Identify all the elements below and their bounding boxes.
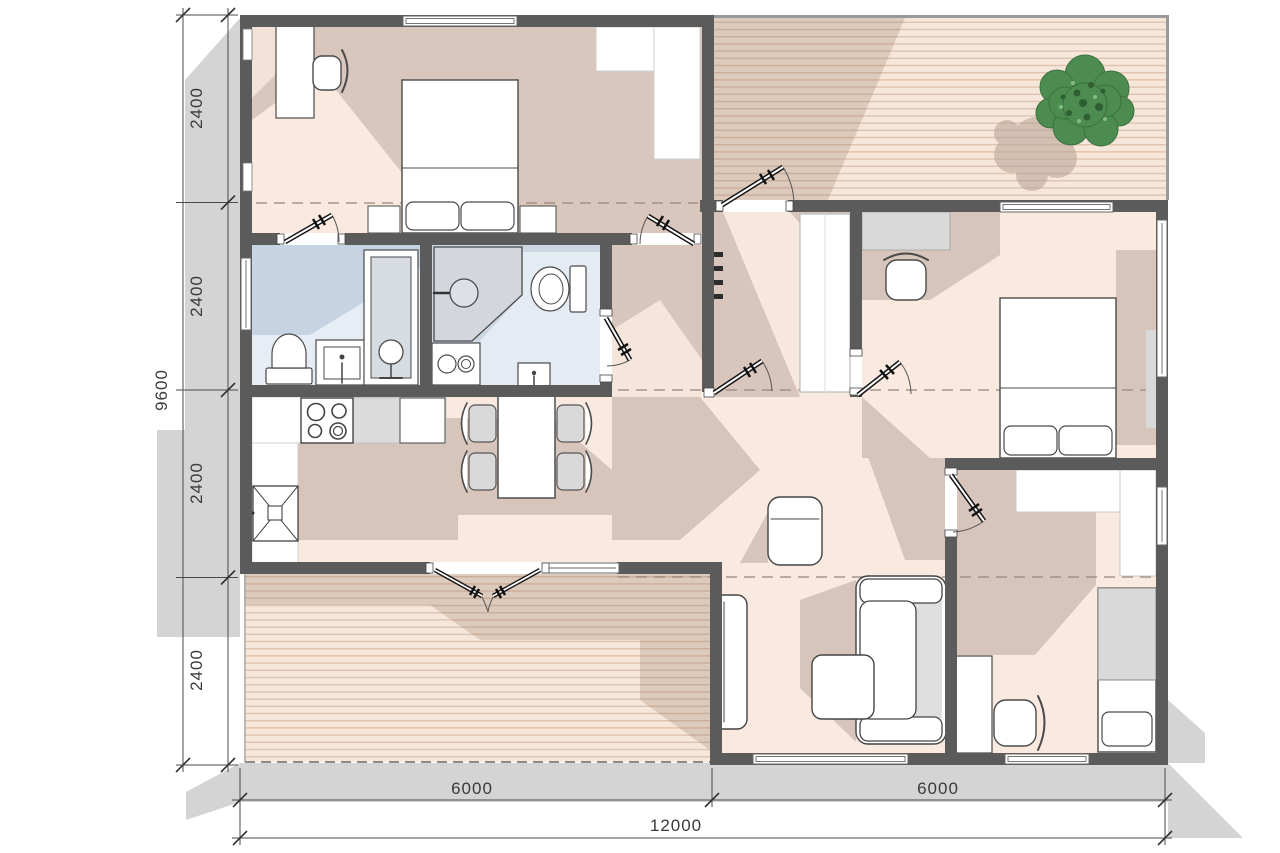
dining-chair (469, 453, 496, 490)
wardrobe (1120, 470, 1156, 576)
terrace-bottom-left (244, 574, 710, 762)
dining-table (498, 396, 555, 498)
washing-machine (432, 343, 480, 385)
dim-label-bottom-total: 12000 (650, 816, 702, 836)
window (243, 163, 252, 191)
window (1157, 220, 1167, 377)
dining-chair (469, 405, 496, 442)
double-bed (1000, 298, 1116, 458)
nightstand (520, 206, 556, 233)
window (753, 754, 908, 764)
hall-wardrobe (800, 214, 850, 392)
stove-icon (301, 398, 353, 443)
dim-label-bottom-2: 6000 (917, 779, 959, 799)
hallway-floor (612, 245, 702, 397)
window (403, 16, 517, 26)
wardrobe (654, 27, 700, 159)
dining-chair (557, 405, 584, 442)
dim-label-left-2: 2400 (187, 275, 207, 317)
double-bed (402, 80, 518, 233)
dining-chair (557, 453, 584, 490)
dim-label-bottom-1: 6000 (451, 779, 493, 799)
small-sink (518, 363, 550, 386)
toilet (531, 266, 586, 312)
window (1157, 487, 1167, 545)
window (1000, 202, 1113, 212)
shower-cabinet (364, 250, 418, 385)
dim-label-left-total: 9600 (152, 369, 172, 411)
window (241, 258, 251, 330)
shelf (862, 212, 950, 250)
nightstand (368, 206, 400, 233)
window (1005, 754, 1089, 764)
wardrobe (596, 27, 654, 71)
ottoman (768, 497, 822, 565)
window (243, 29, 252, 60)
desk (276, 26, 314, 118)
single-bed (1098, 588, 1156, 752)
wardrobe (1016, 470, 1120, 512)
floor-plan-canvas: 2400 2400 2400 2400 9600 6000 6000 12000 (0, 0, 1280, 853)
dim-label-left-3: 2400 (187, 462, 207, 504)
dim-label-left-4: 2400 (187, 649, 207, 691)
kitchen-counter-gray (353, 398, 400, 443)
bathroom-sink (316, 340, 368, 385)
window (543, 563, 619, 573)
window-sill-shelf (1146, 330, 1156, 428)
kitchen-cabinet (400, 398, 445, 443)
dim-label-left-1: 2400 (187, 87, 207, 129)
